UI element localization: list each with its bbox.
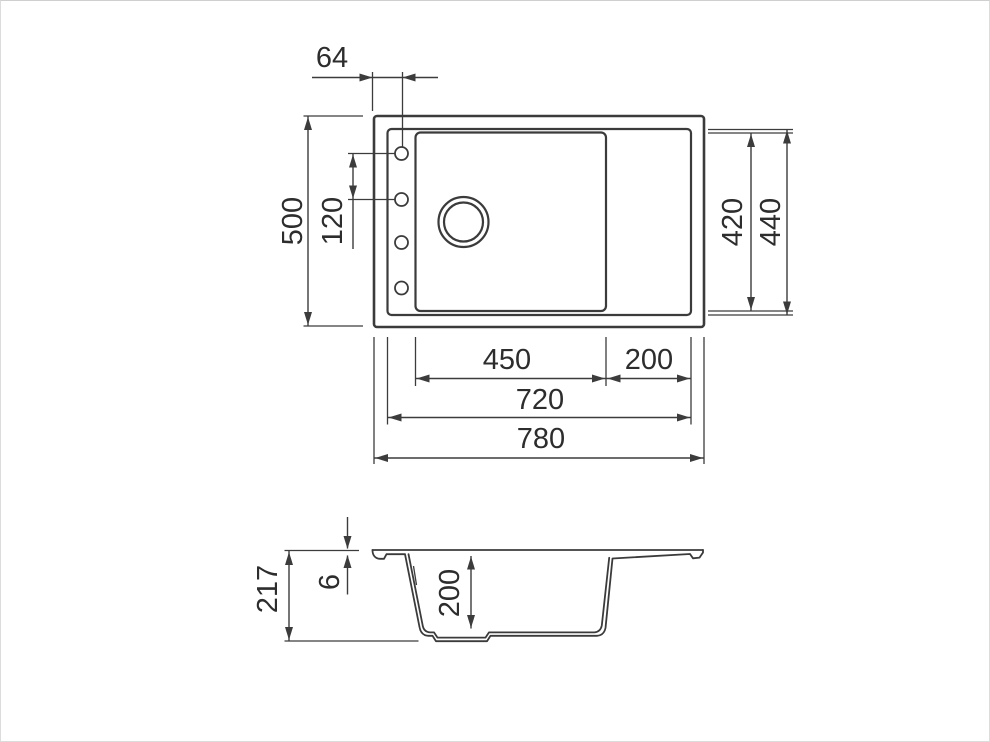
side-view [373, 550, 704, 641]
arrowhead [592, 375, 605, 383]
dim-label-overall-width: 780 [517, 423, 565, 455]
tap-hole-3 [395, 236, 408, 249]
dimension-overall-width: 780 [374, 423, 704, 462]
dimension-tap-hole-spacing: 120 [317, 154, 395, 250]
dim-label-tap-hole-spacing: 120 [317, 197, 349, 245]
dim-label-bowl-depth: 420 [717, 198, 749, 246]
arrowhead [403, 74, 416, 82]
arrowhead [344, 536, 352, 549]
dim-label-overall-height: 217 [252, 565, 284, 613]
arrowhead [677, 414, 690, 422]
drain-outer-circle [439, 197, 489, 247]
dimension-rim-thickness: 6 [314, 517, 352, 595]
arrowhead [747, 134, 755, 147]
dimension-overall-height: 217 [252, 551, 419, 642]
arrowhead [677, 375, 690, 383]
dim-label-tap-hole-offset: 64 [316, 42, 348, 74]
tap-hole-4 [395, 282, 408, 295]
arrowhead [304, 312, 312, 325]
dim-label-rim-depth: 440 [755, 198, 787, 246]
arrowhead [360, 74, 373, 82]
dim-label-overall-depth: 500 [277, 197, 309, 245]
arrowhead [608, 375, 621, 383]
dim-label-rim-thickness: 6 [314, 574, 346, 590]
arrowhead [690, 454, 703, 462]
top-view [374, 116, 704, 327]
dim-label-rim-width: 720 [516, 384, 564, 416]
arrowhead [285, 552, 293, 565]
arrowhead [304, 117, 312, 130]
dimension-bowl-inner-depth: 200 [434, 556, 475, 629]
tap-hole-1 [395, 147, 408, 160]
dim-label-drainboard-width: 200 [625, 344, 673, 376]
arrowhead [344, 555, 352, 568]
dimension-rim-width: 720 [388, 384, 692, 422]
dimension-drainboard-width: 200 [608, 344, 691, 383]
arrowhead [783, 302, 791, 315]
technical-drawing-canvas: 64 500 120 420 440 [0, 0, 990, 742]
arrowhead [467, 557, 475, 570]
arrowhead [417, 375, 430, 383]
sink-outer-edge [374, 116, 704, 327]
dim-label-bowl-inner-depth: 200 [434, 569, 466, 617]
sink-rim-inner-edge [388, 129, 692, 315]
tap-hole-2 [395, 193, 408, 206]
drain-inner-circle [444, 203, 483, 242]
dimension-rim-depth: 440 [755, 130, 791, 315]
arrowhead [285, 627, 293, 640]
arrowhead [467, 615, 475, 628]
arrowhead [375, 454, 388, 462]
sink-dimension-drawing: 64 500 120 420 440 [1, 1, 990, 742]
arrowhead [349, 186, 357, 199]
dim-label-bowl-width: 450 [483, 344, 531, 376]
arrowhead [389, 414, 402, 422]
sink-section-outer-profile [373, 550, 704, 641]
arrowhead [349, 155, 357, 168]
arrowhead [747, 297, 755, 310]
